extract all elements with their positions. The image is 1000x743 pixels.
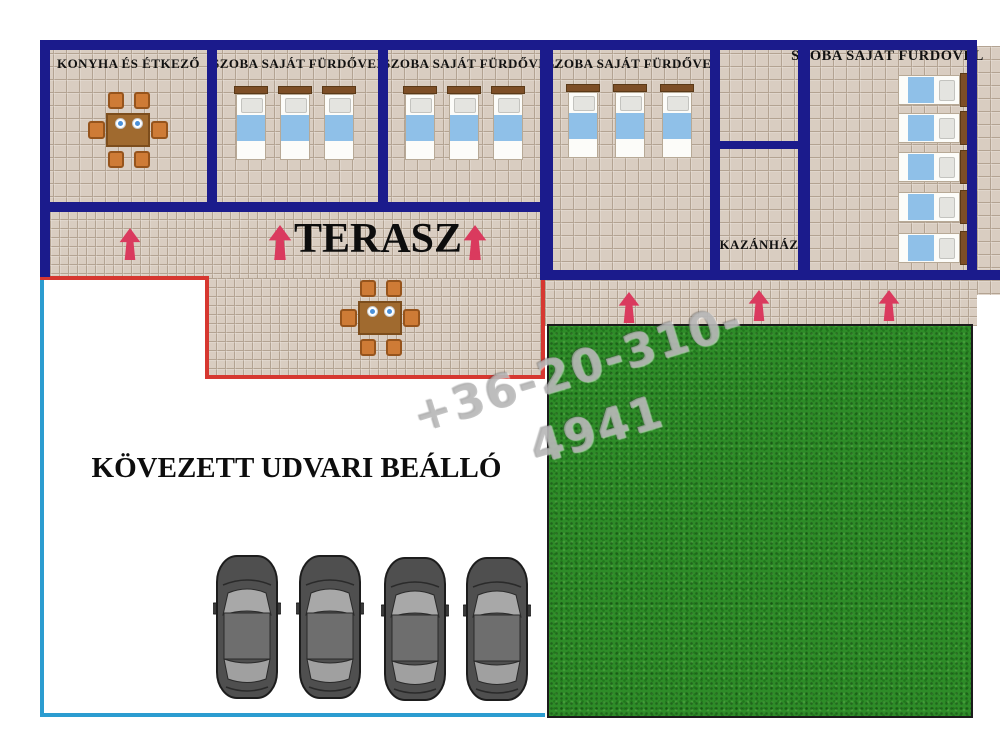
terrace-boundary-top — [40, 276, 209, 280]
bed-icon — [898, 152, 968, 182]
bed-icon — [491, 86, 525, 160]
room1-label: SZOBA SAJÁT FÜRDŐVEL — [212, 56, 383, 72]
chair-icon — [151, 121, 168, 139]
plate-icon — [132, 118, 143, 129]
plate-icon — [115, 118, 126, 129]
room4-label: SZOBA SAJÁT FÜRDŐVEL — [790, 48, 985, 65]
table-icon — [106, 113, 150, 147]
car-icon — [296, 553, 364, 701]
parking-boundary-left — [40, 280, 44, 717]
bed-icon — [447, 86, 481, 160]
bed-icon — [898, 113, 968, 143]
bed-icon — [566, 84, 600, 158]
chair-icon — [340, 309, 357, 327]
bed-icon — [234, 86, 268, 160]
chair-icon — [386, 280, 402, 297]
chair-icon — [134, 92, 150, 109]
wall-room3-hall — [710, 40, 720, 280]
chair-icon — [134, 151, 150, 168]
chair-icon — [88, 121, 105, 139]
car-icon — [213, 553, 281, 701]
wall-room2-room3 — [540, 40, 553, 280]
bed-icon — [898, 192, 968, 222]
car-icon — [381, 555, 449, 703]
dining-table-icon — [340, 280, 420, 356]
wall-outer-left — [40, 40, 50, 277]
parking-label: KÖVEZETT UDVARI BEÁLLÓ — [44, 451, 549, 485]
table-icon — [358, 301, 402, 335]
plate-icon — [367, 306, 378, 317]
chair-icon — [360, 280, 376, 297]
chair-icon — [108, 92, 124, 109]
bed-icon — [278, 86, 312, 160]
bed-icon — [898, 233, 968, 263]
car-icon — [463, 555, 531, 703]
chair-icon — [403, 309, 420, 327]
bed-icon — [613, 84, 647, 158]
room3-label: SZOBA SAJÁT FÜRDŐVEL — [547, 56, 715, 72]
wall-outer-top — [40, 40, 977, 50]
right-edge-tiles — [977, 46, 1000, 295]
terrace-boundary-left — [205, 276, 209, 379]
bed-icon — [322, 86, 356, 160]
wall-hall-boiler — [710, 141, 810, 149]
chair-icon — [386, 339, 402, 356]
floor-plan: KONYHA ÉS ÉTKEZŐ SZOBA SAJÁT FÜRDŐVEL SZ… — [0, 0, 1000, 743]
bed-icon — [660, 84, 694, 158]
plate-icon — [384, 306, 395, 317]
room2-label: SZOBA SAJÁT FÜRDŐVEL — [383, 56, 545, 72]
wall-hall-room4 — [798, 40, 810, 280]
wall-outer-right — [967, 40, 977, 280]
parking-boundary-bottom — [40, 713, 545, 717]
terrace-label: TERASZ — [288, 218, 468, 260]
wall-rooms-terrace — [40, 202, 552, 212]
wall-kitchen-room1 — [207, 40, 217, 212]
dining-table-icon — [88, 92, 168, 168]
bed-icon — [898, 75, 968, 105]
kitchen-label: KONYHA ÉS ÉTKEZŐ — [50, 56, 207, 72]
bed-icon — [403, 86, 437, 160]
wall-room1-room2 — [378, 40, 388, 212]
chair-icon — [108, 151, 124, 168]
boiler-label: KAZÁNHÁZ — [718, 237, 800, 253]
chair-icon — [360, 339, 376, 356]
